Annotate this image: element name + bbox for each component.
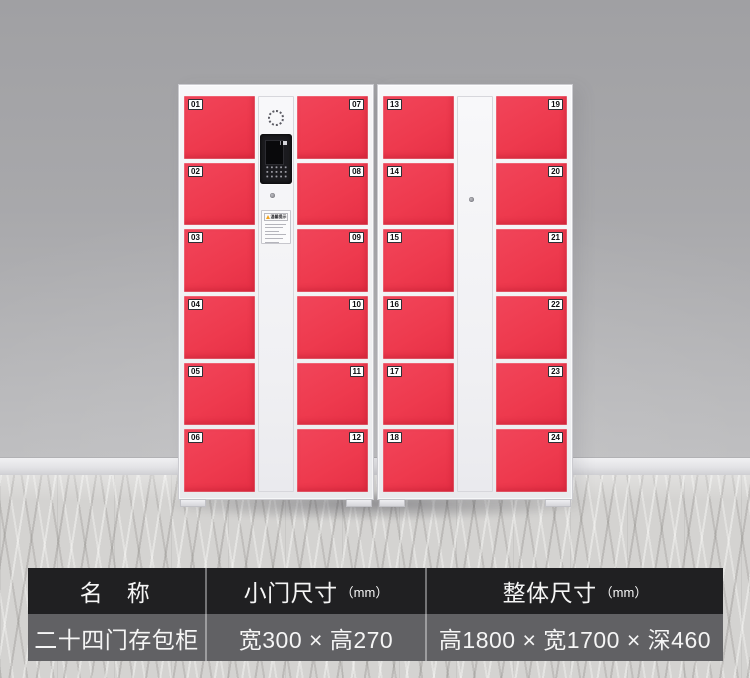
panel-screen	[265, 140, 284, 165]
locker-door: 16	[383, 296, 454, 359]
locker-door: 23	[496, 363, 567, 426]
locker-cabinet-1: 010203040506温馨提示070809101112	[178, 84, 374, 500]
locker-door: 09	[297, 229, 368, 292]
door-number-badge: 17	[387, 366, 402, 377]
door-number-badge: 10	[349, 299, 364, 310]
locker-door: 19	[496, 96, 567, 159]
door-number-badge: 23	[548, 366, 563, 377]
cabinet-foot	[180, 499, 206, 507]
door-number-badge: 08	[349, 166, 364, 177]
locker-door: 21	[496, 229, 567, 292]
locker-door: 06	[184, 429, 255, 492]
sticker-text-line	[265, 242, 279, 243]
locker-door: 14	[383, 163, 454, 226]
door-number-badge: 20	[548, 166, 563, 177]
door-column-left: 131415161718	[383, 96, 454, 492]
door-number-badge: 18	[387, 432, 402, 443]
locker-door: 17	[383, 363, 454, 426]
warning-triangle-icon	[266, 215, 270, 219]
spec-header-door-size-label: 小门尺寸	[244, 574, 338, 608]
keyhole-icon	[469, 197, 474, 202]
door-column-right: 192021222324	[496, 96, 567, 492]
spec-value-overall-size: 高1800 × 宽1700 × 深460	[425, 614, 723, 661]
door-number-badge: 24	[548, 432, 563, 443]
sticker-text-line	[265, 227, 283, 228]
door-number-badge: 03	[188, 232, 203, 243]
door-number-badge: 14	[387, 166, 402, 177]
locker-door: 03	[184, 229, 255, 292]
spec-value-door-size: 宽300 × 高270	[205, 614, 425, 661]
door-number-badge: 05	[188, 366, 203, 377]
sticker-title: 温馨提示	[264, 213, 288, 221]
locker-door: 04	[184, 296, 255, 359]
door-number-badge: 22	[548, 299, 563, 310]
door-number-badge: 02	[188, 166, 203, 177]
door-number-badge: 13	[387, 99, 402, 110]
locker-cabinet-2: 131415161718192021222324	[377, 84, 573, 500]
sticker-text-line	[265, 234, 286, 235]
locker-door: 02	[184, 163, 255, 226]
spec-header-door-size: 小门尺寸 （mm）	[205, 568, 425, 614]
blank-column	[457, 96, 493, 492]
door-number-badge: 11	[350, 366, 364, 377]
spec-header-overall-size-unit: （mm）	[600, 582, 648, 601]
spec-header-overall-size: 整体尺寸 （mm）	[425, 568, 723, 614]
door-number-badge: 15	[387, 232, 402, 243]
panel-indicator-icon	[280, 141, 281, 145]
spec-table: 名 称 小门尺寸 （mm） 整体尺寸 （mm） 二十四门存包柜 宽300 × 高…	[28, 568, 723, 661]
spec-header-overall-size-label: 整体尺寸	[503, 574, 597, 608]
panel-keypad	[265, 165, 287, 179]
locker-door: 10	[297, 296, 368, 359]
locker-door: 08	[297, 163, 368, 226]
locker-door: 24	[496, 429, 567, 492]
locker-door: 01	[184, 96, 255, 159]
door-number-badge: 07	[349, 99, 364, 110]
locker-door: 22	[496, 296, 567, 359]
spec-header-door-size-unit: （mm）	[341, 582, 389, 601]
sticker-text-line	[265, 238, 283, 239]
locker-door: 12	[297, 429, 368, 492]
door-column-right: 070809101112	[297, 96, 368, 492]
product-image: 010203040506温馨提示070809101112131415161718…	[0, 0, 750, 678]
door-number-badge: 12	[349, 432, 364, 443]
control-column: 温馨提示	[258, 96, 294, 492]
control-panel	[260, 134, 292, 184]
sticker-text-line	[265, 231, 279, 232]
keyhole-icon	[270, 193, 275, 198]
notice-sticker: 温馨提示	[261, 210, 291, 244]
door-number-badge: 04	[188, 299, 203, 310]
locker-door: 18	[383, 429, 454, 492]
speaker-grille-icon	[268, 110, 284, 126]
locker-door: 05	[184, 363, 255, 426]
spec-header-name: 名 称	[28, 568, 205, 614]
sticker-text-line	[265, 224, 286, 225]
spec-table-value-row: 二十四门存包柜 宽300 × 高270 高1800 × 宽1700 × 深460	[28, 614, 723, 661]
door-number-badge: 06	[188, 432, 203, 443]
door-number-badge: 16	[387, 299, 402, 310]
spec-value-name: 二十四门存包柜	[28, 614, 205, 661]
door-number-badge: 01	[188, 99, 203, 110]
spec-header-name-label: 名 称	[80, 574, 151, 608]
door-number-badge: 09	[349, 232, 364, 243]
locker-door: 07	[297, 96, 368, 159]
locker-door: 15	[383, 229, 454, 292]
door-column-left: 010203040506	[184, 96, 255, 492]
cabinet-foot	[379, 499, 405, 507]
door-number-badge: 19	[548, 99, 563, 110]
locker-cabinets: 010203040506温馨提示070809101112131415161718…	[178, 84, 573, 500]
cabinet-foot	[545, 499, 571, 507]
locker-door: 11	[297, 363, 368, 426]
sticker-title-text: 温馨提示	[271, 215, 287, 219]
locker-door: 20	[496, 163, 567, 226]
panel-indicator-icon	[283, 141, 287, 145]
spec-table-header-row: 名 称 小门尺寸 （mm） 整体尺寸 （mm）	[28, 568, 723, 614]
locker-door: 13	[383, 96, 454, 159]
door-number-badge: 21	[548, 232, 563, 243]
cabinet-foot	[346, 499, 372, 507]
